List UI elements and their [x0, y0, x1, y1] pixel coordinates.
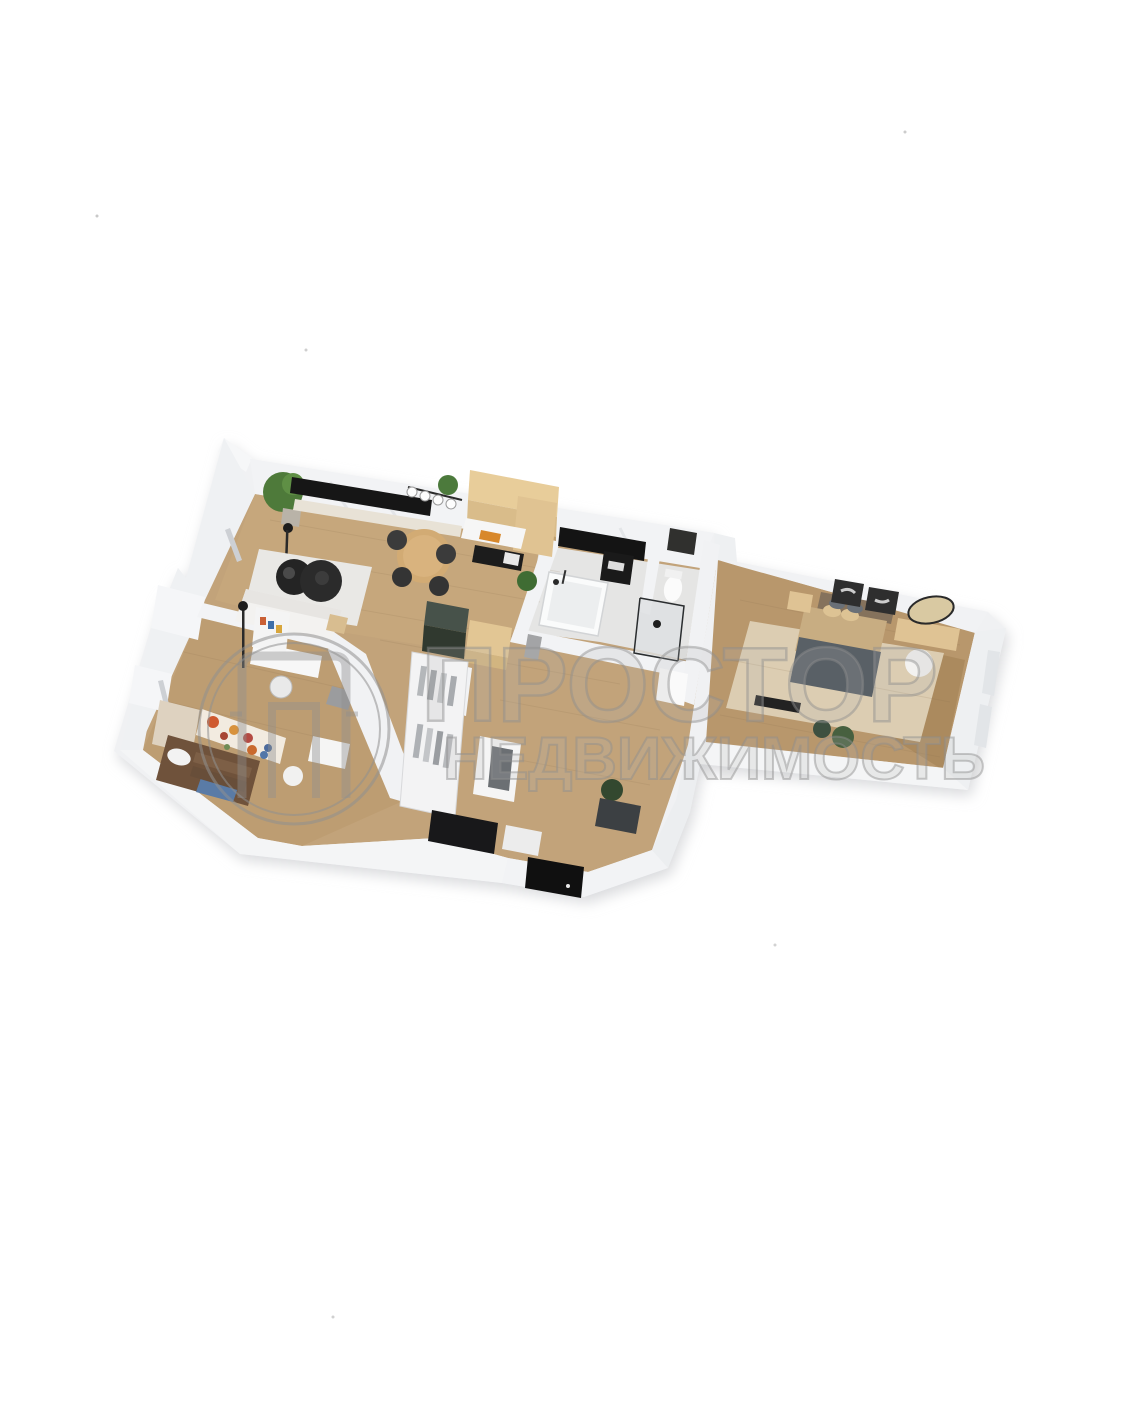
svg-text:НЕДВИЖИМОСТЬ: НЕДВИЖИМОСТЬ — [443, 725, 985, 792]
